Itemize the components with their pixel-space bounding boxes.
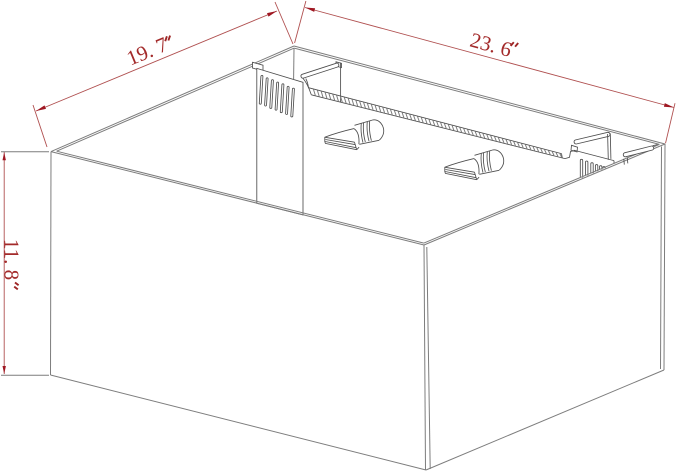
svg-text:23. 6: 23. 6 (468, 28, 515, 62)
svg-text:11. 8: 11. 8 (0, 239, 24, 280)
